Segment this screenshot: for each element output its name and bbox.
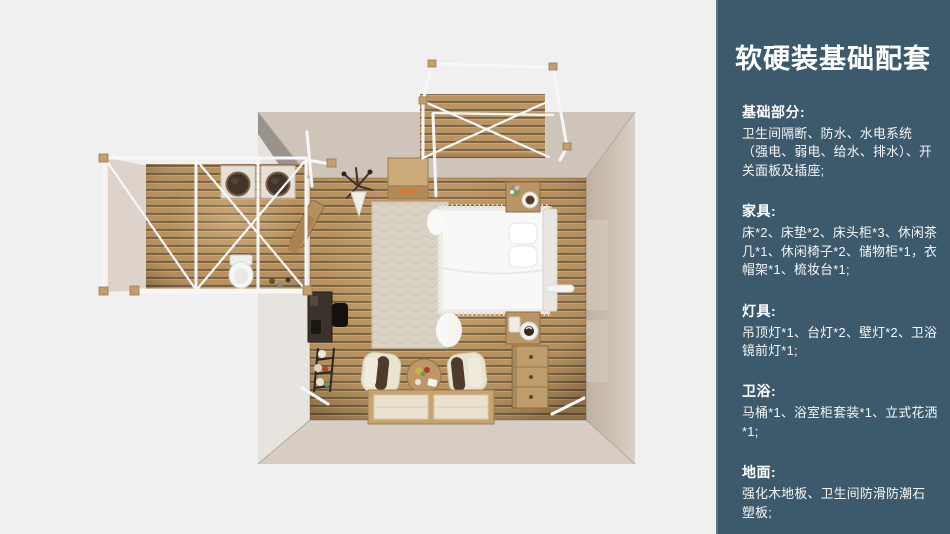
section-basics: 基础部分: 卫生间隔断、防水、水电系统（强电、弱电、给水、排水）、开关面板及插座… <box>742 102 938 180</box>
section-flooring-heading: 地面: <box>742 462 938 482</box>
nightstand-bottom <box>506 312 540 344</box>
section-bathroom-heading: 卫浴: <box>742 381 938 401</box>
dresser <box>512 346 548 408</box>
armchair-right <box>446 351 488 395</box>
bathroom-wall <box>108 158 148 292</box>
wall-inset-upper <box>586 220 608 310</box>
section-lighting-heading: 灯具: <box>742 301 938 321</box>
info-panel: 软硬装基础配套 基础部分: 卫生间隔断、防水、水电系统（强电、弱电、给水、排水）… <box>716 0 950 534</box>
headboard <box>543 209 557 311</box>
section-furniture-body: 床*2、床垫*2、床头柜*3、休闲茶几*1、休闲椅子*2、储物柜*1，衣帽架*1… <box>742 224 938 279</box>
slide: 软硬装基础配套 基础部分: 卫生间隔断、防水、水电系统（强电、弱电、给水、排水）… <box>0 0 950 534</box>
pillow <box>509 246 537 267</box>
floorplan-render <box>0 0 716 534</box>
storage-cabinet <box>388 158 428 199</box>
fur-throw <box>427 209 445 235</box>
wash-basin-left <box>221 164 255 198</box>
bathroom-wing <box>108 158 306 292</box>
section-flooring-body: 强化木地板、卫生间防滑防潮石塑板; <box>742 485 938 522</box>
section-basics-heading: 基础部分: <box>742 102 938 122</box>
toilet <box>229 255 253 288</box>
floorplan-svg <box>0 0 716 534</box>
nightstand-top <box>506 182 540 212</box>
panel-sections: 基础部分: 卫生间隔断、防水、水电系统（强电、弱电、给水、排水）、开关面板及插座… <box>742 102 938 522</box>
round-tea-table <box>407 359 441 393</box>
wall-inset-lower <box>586 320 608 382</box>
floor-mats <box>368 390 494 424</box>
entrance-deck <box>420 94 545 158</box>
panel-title: 软硬装基础配套 <box>722 44 944 75</box>
section-flooring: 地面: 强化木地板、卫生间防滑防潮石塑板; <box>742 462 938 522</box>
section-basics-body: 卫生间隔断、防水、水电系统（强电、弱电、给水、排水）、开关面板及插座; <box>742 125 938 180</box>
wall-bottom <box>258 420 635 464</box>
fur-throw <box>436 313 462 347</box>
desk-chair <box>332 303 348 327</box>
wall-lamp <box>546 285 574 292</box>
armchair-left <box>360 351 402 395</box>
section-furniture: 家具: 床*2、床垫*2、床头柜*3、休闲茶几*1、休闲椅子*2、储物柜*1，衣… <box>742 201 938 279</box>
section-furniture-heading: 家具: <box>742 201 938 221</box>
section-lighting: 灯具: 吊顶灯*1、台灯*2、壁灯*2、卫浴镜前灯*1; <box>742 301 938 361</box>
section-lighting-body: 吊顶灯*1、台灯*2、壁灯*2、卫浴镜前灯*1; <box>742 324 938 361</box>
section-bathroom: 卫浴: 马桶*1、浴室柜套装*1、立式花洒*1; <box>742 381 938 441</box>
pillow <box>509 223 537 244</box>
section-bathroom-body: 马桶*1、浴室柜套装*1、立式花洒*1; <box>742 404 938 441</box>
